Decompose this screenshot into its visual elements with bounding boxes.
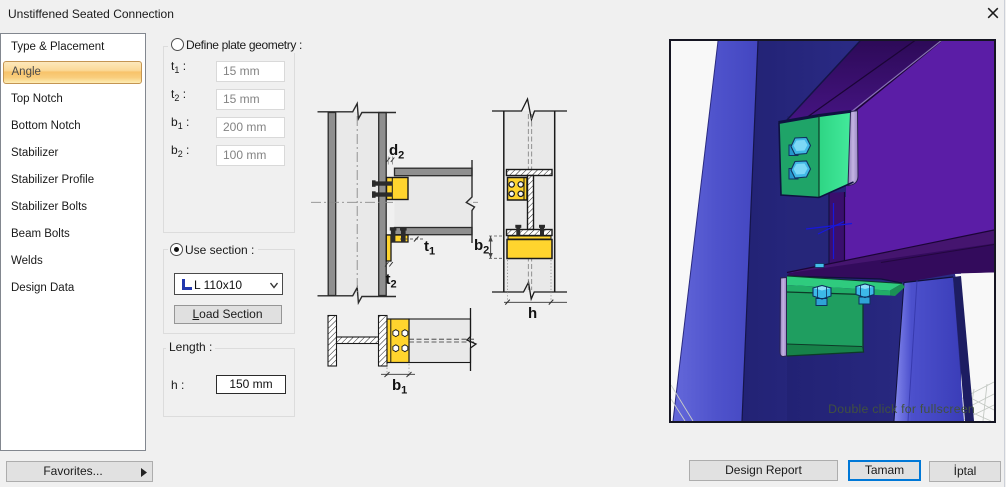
svg-text:h: h xyxy=(528,305,537,322)
svg-text:b2: b2 xyxy=(474,237,489,257)
svg-text:t2: t2 xyxy=(386,271,397,291)
svg-text:d2: d2 xyxy=(389,142,404,162)
svg-text:b1: b1 xyxy=(392,377,407,397)
svg-text:Double click for fullscreen: Double click for fullscreen xyxy=(828,402,975,416)
svg-text:t1: t1 xyxy=(424,238,435,258)
